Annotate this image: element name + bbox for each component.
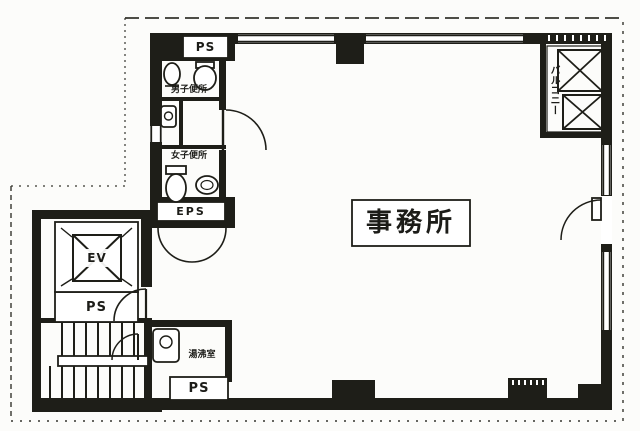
toilet-tank-icon	[166, 166, 186, 174]
column-bottom-left	[332, 380, 375, 400]
label-elevator: EV	[80, 249, 114, 267]
door-arc-double-right	[192, 228, 226, 262]
urinal-icon	[164, 63, 180, 85]
floor-plan: PS 男子便所 女子便所 EPS EV PS 湯沸室 PS 事務所 バルコニー	[0, 0, 640, 431]
column-top	[336, 33, 364, 64]
wall-wing-top	[32, 210, 152, 219]
label-kitchenette: 湯沸室	[178, 349, 226, 362]
wall-balcony-bottom	[540, 132, 612, 138]
right-door-opening	[601, 196, 612, 244]
sink-icon-wash	[161, 106, 176, 127]
partition-mens-bottom	[152, 97, 226, 101]
wall-kitchenette-right	[225, 320, 232, 382]
sink-icon-kitchenette	[153, 329, 179, 362]
stair-treads-lower	[50, 366, 146, 399]
label-womens-toilet: 女子便所	[152, 150, 226, 163]
label-balcony: バルコニー	[546, 48, 560, 132]
label-eps: EPS	[157, 202, 225, 221]
label-office: 事務所	[352, 200, 470, 246]
label-mens-toilet: 男子便所	[152, 84, 226, 97]
door-arc-toilet-vestibule	[226, 110, 266, 150]
partition-wash-cell	[179, 101, 183, 147]
wall-kitchenette-top	[152, 320, 232, 327]
equipment-x-mark-2	[563, 95, 602, 129]
basin-icon-womens	[196, 176, 218, 194]
toilet-icon-womens	[166, 174, 186, 202]
stair-landing-rail	[58, 356, 148, 366]
column-bottom-corner	[578, 384, 612, 410]
wall-ev-hall-right	[141, 210, 152, 287]
partition-womens-top	[152, 145, 226, 149]
floor-plan-drawing	[0, 0, 640, 431]
wall-wing-bottom	[32, 398, 162, 412]
equipment-x-mark-1	[558, 50, 602, 91]
label-ps-elevator: PS	[55, 292, 138, 322]
door-arc-double-left	[158, 228, 192, 262]
wall-wing-left	[32, 210, 41, 412]
label-ps-top: PS	[183, 36, 228, 58]
label-ps-bottom: PS	[170, 377, 228, 400]
